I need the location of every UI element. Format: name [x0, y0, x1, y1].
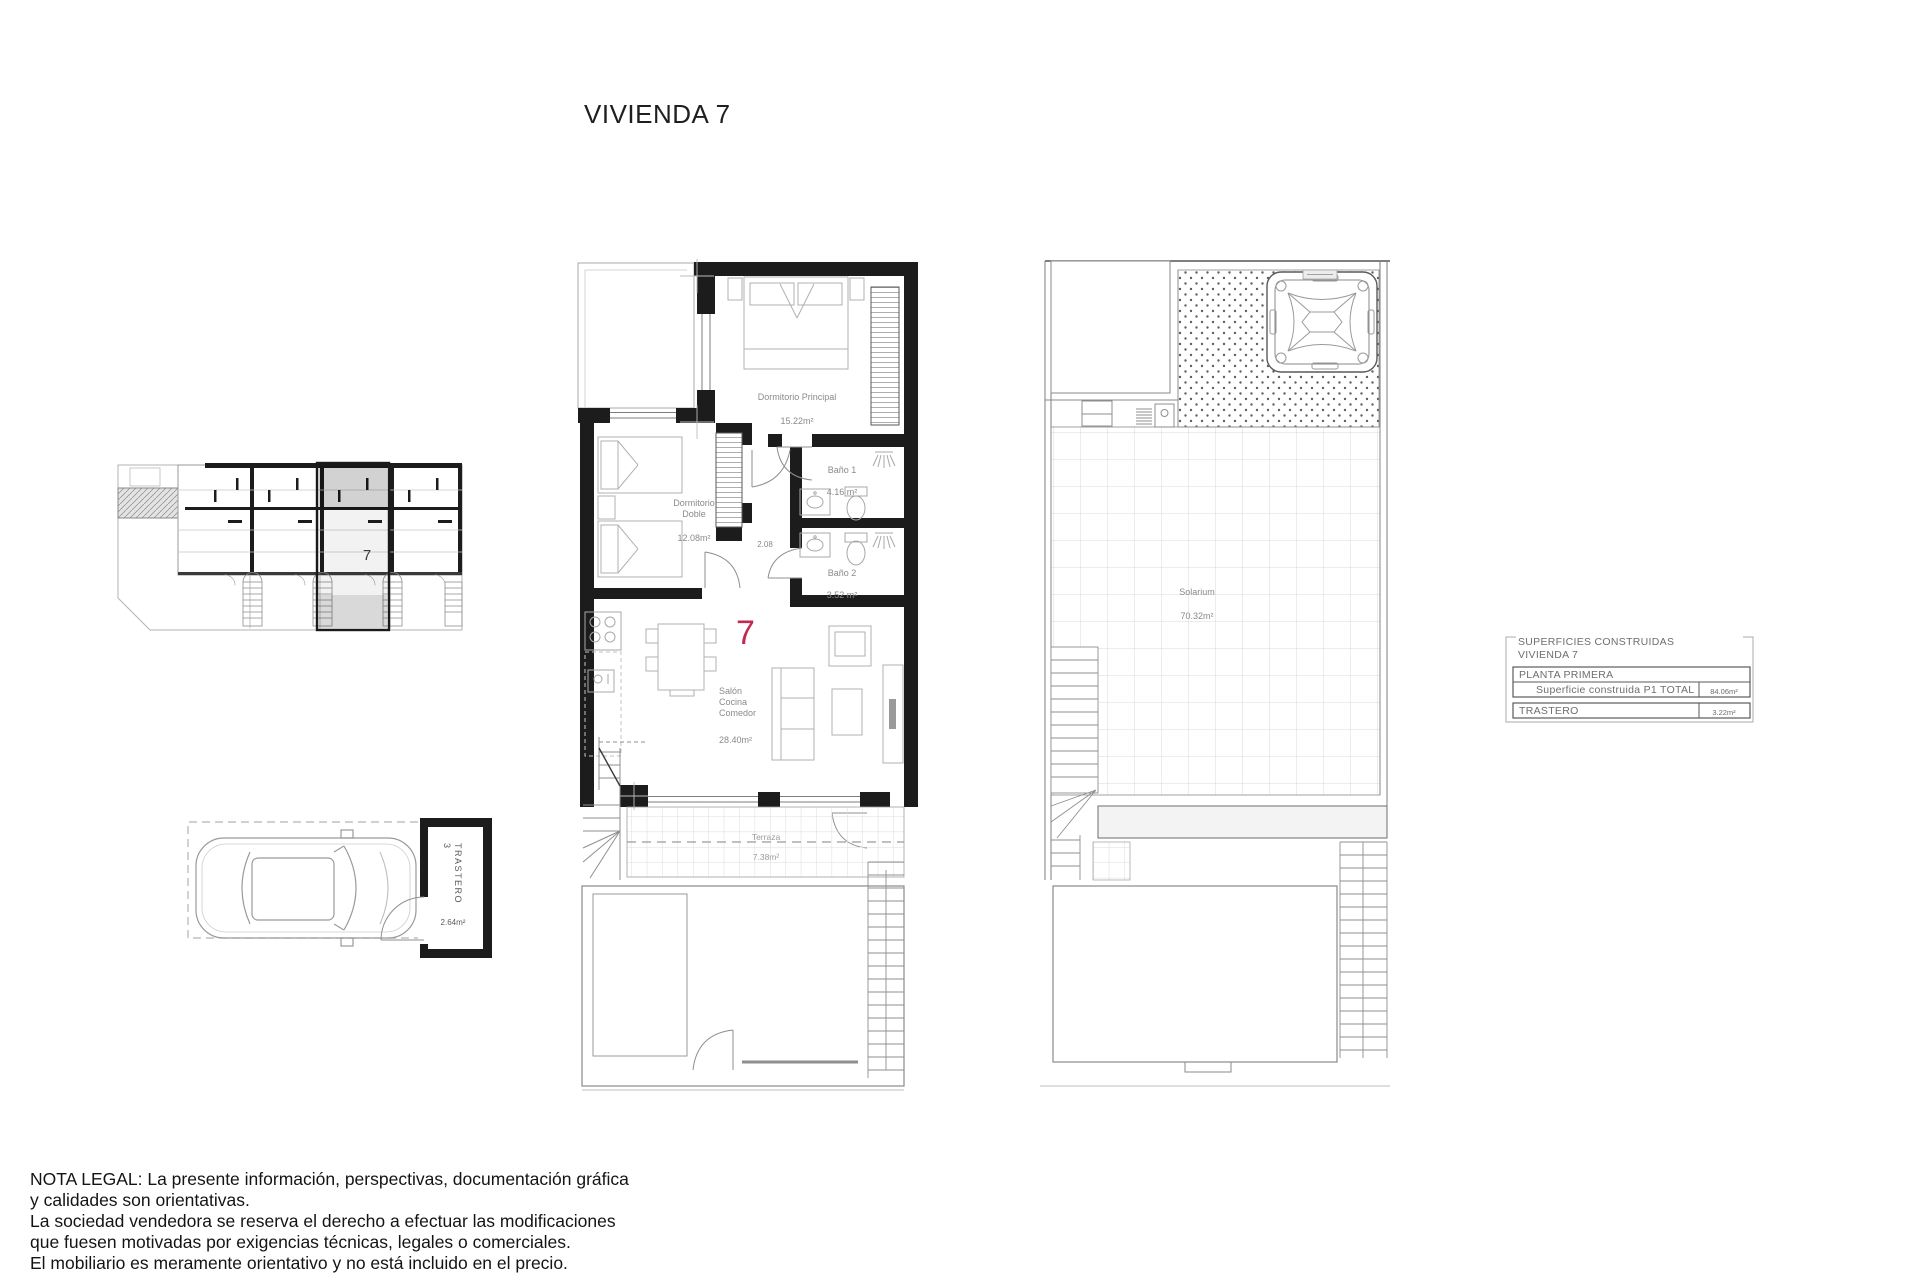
room-name: Solarium	[1147, 587, 1247, 598]
dining-table	[646, 624, 716, 696]
solarium-lower-patio	[1040, 886, 1390, 1086]
hall-dimension: 2.08	[745, 539, 785, 550]
lower-patio	[582, 886, 904, 1090]
solarium-label: Solarium 70.32m²	[1147, 576, 1247, 633]
wardrobe-principal	[871, 287, 899, 425]
sheet-title: VIVIENDA 7	[584, 109, 731, 120]
roof-edge-band	[1098, 806, 1387, 838]
solarium-plan	[1040, 261, 1390, 1086]
room-area: 7.38m²	[726, 852, 806, 862]
room-name: Baño 1	[812, 465, 872, 476]
sink-icon	[1161, 410, 1168, 417]
trastero-area: 2.64m²	[428, 917, 478, 928]
room-name: Dormitorio Principal	[737, 392, 857, 403]
site-annex-room	[130, 468, 160, 486]
shower-icon	[873, 533, 895, 549]
exterior-stairs-right	[868, 862, 904, 1078]
room-area: 3.52 m²	[812, 590, 872, 601]
trastero-label: TRASTERO 3	[441, 843, 463, 913]
room-area: 15.22m²	[737, 416, 857, 427]
room-area: 28.40m²	[719, 735, 789, 746]
armchair	[829, 626, 871, 666]
table-header-1: SUPERFICIES CONSTRUIDAS	[1518, 636, 1674, 648]
room-area: 12.08m²	[644, 533, 744, 544]
floor-plan-sheet: VIVIENDA 7 Dormitorio Principal 15.22m² …	[0, 0, 1920, 1280]
adjacent-void	[578, 263, 694, 408]
table-row1-label: PLANTA PRIMERA	[1519, 669, 1613, 681]
table-row2-value: 84.06m²	[1699, 686, 1749, 697]
table-row2-label: Superficie construida P1 TOTAL	[1536, 684, 1694, 696]
room-label-dormitorio-doble: Dormitorio Doble 12.08m²	[644, 487, 744, 555]
room-name: Terraza	[726, 832, 806, 842]
table-row3-label: TRASTERO	[1519, 705, 1579, 717]
table-row3-value: 3.22m²	[1699, 707, 1749, 718]
roof-opening	[1051, 261, 1170, 393]
room-name: Dormitorio Doble	[644, 498, 744, 520]
room-area: 70.32m²	[1147, 611, 1247, 622]
unit7-highlight	[317, 463, 389, 630]
room-area: 4.16 m²	[812, 487, 872, 498]
car	[196, 830, 416, 946]
room-label-dormitorio-principal: Dormitorio Principal 15.22m²	[737, 381, 857, 438]
site-storage-hatched	[118, 488, 178, 518]
room-name: Baño 2	[812, 568, 872, 579]
room-label-salon: Salón Cocina Comedor 28.40m²	[719, 675, 789, 757]
solarium-stair-right	[1340, 842, 1387, 1058]
room-label-terraza: Terraza 7.38m²	[726, 822, 806, 872]
key-plan	[118, 463, 462, 630]
legal-note: NOTA LEGAL: La presente información, per…	[30, 1169, 750, 1274]
unit-number-main: 7	[736, 628, 755, 639]
jacuzzi	[1267, 270, 1377, 372]
table-header-2: VIVIENDA 7	[1518, 649, 1578, 661]
bed-double	[728, 277, 864, 369]
room-label-bano1: Baño 1 4.16 m²	[812, 454, 872, 509]
coffee-table	[832, 689, 862, 735]
unit-number-keyplan: 7	[352, 550, 382, 561]
shower-icon	[873, 452, 895, 468]
room-label-bano2: Baño 2 3.52 m²	[812, 557, 872, 612]
vent-icon	[1136, 409, 1152, 424]
rooftop-fixtures	[1082, 401, 1174, 427]
tv-unit	[883, 665, 903, 763]
room-name: Salón Cocina Comedor	[719, 686, 789, 719]
